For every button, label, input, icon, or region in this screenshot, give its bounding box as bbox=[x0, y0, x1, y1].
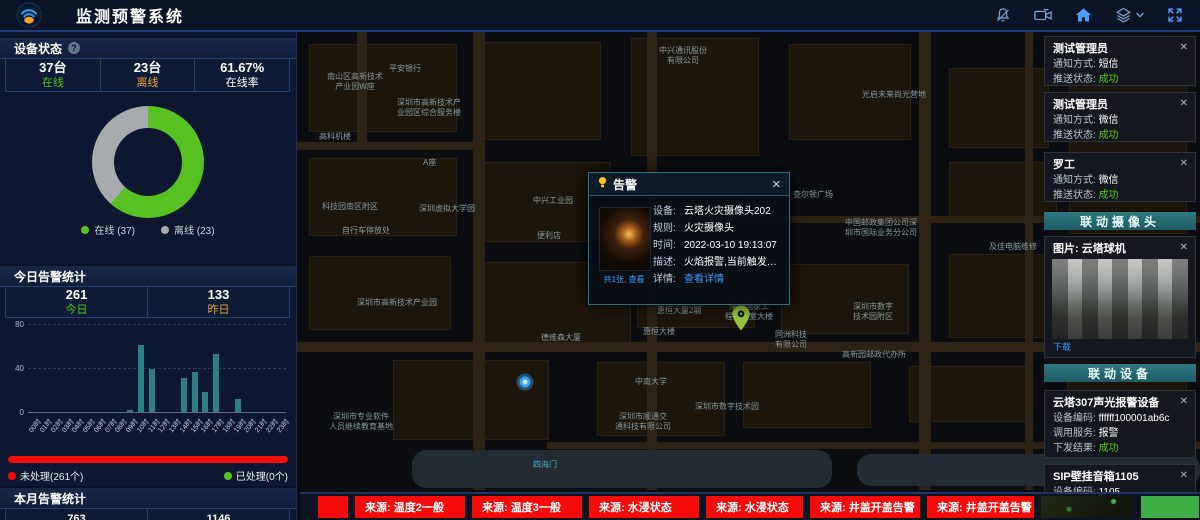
card-row: 推送状态: 成功 bbox=[1053, 130, 1187, 142]
x-axis-tick: 10时 bbox=[130, 417, 152, 440]
bar bbox=[192, 372, 198, 412]
card-close-icon[interactable]: ✕ bbox=[1180, 470, 1188, 481]
row-value: 短信 bbox=[1099, 59, 1119, 70]
map-building bbox=[309, 256, 451, 330]
chart-gridline bbox=[28, 368, 286, 369]
stat-label: 今日 bbox=[66, 305, 88, 316]
stat-value: 261 bbox=[66, 288, 88, 302]
x-axis-tick: 22时 bbox=[259, 417, 281, 440]
monitoring-dashboard: 监测预警系统 设备状态 ? 37台在线23台离线61.67%在线率 在线 (37… bbox=[0, 0, 1200, 520]
row-label: 通知方式: bbox=[1053, 115, 1099, 126]
today-alarm-stats: 261今日133昨日 bbox=[6, 286, 290, 318]
right-panel: 测试管理员✕通知方式: 短信推送状态: 成功测试管理员✕通知方式: 微信推送状态… bbox=[1044, 34, 1196, 520]
map-label: 深圳市专业软件 人员继续教育基地 bbox=[329, 412, 393, 432]
ticker-alert-card[interactable]: 来源: 温度2一般 bbox=[355, 496, 465, 518]
bar bbox=[213, 354, 219, 412]
left-stats-panel: 设备状态 ? 37台在线23台离线61.67%在线率 在线 (37)离线 (23… bbox=[0, 30, 297, 520]
map-label: 高科机楼 bbox=[319, 132, 351, 142]
x-axis-tick: 17时 bbox=[205, 417, 227, 440]
stat-cell: 23台离线 bbox=[100, 58, 196, 92]
header-actions bbox=[994, 0, 1184, 30]
row-label: 通知方式: bbox=[1053, 175, 1099, 186]
top-header: 监测预警系统 bbox=[0, 0, 1200, 32]
card-row: 通知方式: 微信 bbox=[1053, 175, 1187, 187]
map-label: 便利店 bbox=[537, 231, 561, 241]
map-label: 高新园邮政代办所 bbox=[842, 350, 906, 360]
map-building bbox=[949, 68, 1049, 148]
map-label: A座 bbox=[423, 158, 436, 168]
map-building bbox=[949, 162, 1057, 220]
bar bbox=[235, 399, 241, 412]
month-alarm-title: 本月告警统计 bbox=[14, 490, 86, 507]
x-axis-tick: 13时 bbox=[162, 417, 184, 440]
map-label: 深圳市数字 技术园附区 bbox=[853, 302, 893, 322]
ticker-alert-card[interactable]: 来源: 水浸状态 bbox=[706, 496, 803, 518]
today-alarm-title: 今日告警统计 bbox=[14, 268, 86, 285]
map-label: 同洲科技 有限公司 bbox=[775, 330, 807, 350]
map-label: 深圳市高新技术产业园 bbox=[357, 298, 437, 308]
detail-label: 详情: bbox=[653, 271, 680, 288]
row-label: 设备编码: bbox=[1053, 413, 1099, 424]
popup-close-icon[interactable]: ✕ bbox=[772, 178, 781, 191]
device-name: 云塔307声光报警设备 bbox=[1053, 397, 1187, 410]
stat-label: 在线率 bbox=[226, 78, 259, 89]
map-building bbox=[483, 42, 601, 140]
stat-cell: 61.67%在线率 bbox=[194, 58, 290, 92]
legend-item: 在线 (37) bbox=[81, 222, 135, 237]
notification-card: 罗工✕通知方式: 微信推送状态: 成功 bbox=[1044, 152, 1196, 202]
alarm-snapshot-image[interactable] bbox=[599, 207, 651, 271]
map-label: 查尔顿广场 bbox=[793, 190, 833, 200]
alarm-detail-row: 设备:云塔火灾摄像头202 bbox=[653, 203, 785, 220]
stat-cell: 261今日 bbox=[5, 286, 148, 318]
x-axis-tick: 06时 bbox=[87, 417, 109, 440]
bar bbox=[181, 378, 187, 412]
map-building bbox=[781, 264, 909, 334]
map-label: 深圳虚拟大学园 bbox=[419, 204, 475, 214]
map-wide-road bbox=[412, 450, 832, 488]
device-status-stats: 37台在线23台离线61.67%在线率 bbox=[6, 58, 290, 92]
card-row: 推送状态: 成功 bbox=[1053, 190, 1187, 202]
card-row: 通知方式: 短信 bbox=[1053, 59, 1187, 71]
device-status-donut-chart bbox=[92, 106, 204, 218]
map-label: 中南大学 bbox=[635, 377, 667, 387]
map-road bbox=[473, 30, 485, 490]
unhandled-label: 未处理(261个) bbox=[20, 468, 83, 483]
handled-label: 已处理(0个) bbox=[236, 468, 288, 483]
detail-label: 规则: bbox=[653, 220, 680, 237]
x-axis-tick: 14时 bbox=[173, 417, 195, 440]
stat-cell: 763 bbox=[5, 508, 148, 520]
map-label: 自行车停放处 bbox=[342, 226, 390, 236]
detail-label: 设备: bbox=[653, 203, 680, 220]
x-axis-tick: 15时 bbox=[183, 417, 205, 440]
notification-card: 测试管理员✕通知方式: 短信推送状态: 成功 bbox=[1044, 36, 1196, 86]
x-axis-tick: 21时 bbox=[248, 417, 270, 440]
map-label: 平安银行 bbox=[389, 64, 421, 74]
stat-label: 在线 bbox=[42, 78, 64, 89]
row-label: 调用服务: bbox=[1053, 428, 1099, 439]
card-row: 设备编码: ffffff100001ab6c bbox=[1053, 413, 1187, 425]
alarm-progress-fill bbox=[8, 456, 288, 463]
notification-name: 测试管理员 bbox=[1053, 43, 1187, 56]
y-axis-tick: 80 bbox=[4, 320, 24, 329]
ticker-alert-card[interactable]: 来源: 温度3一般 bbox=[472, 496, 582, 518]
map-label: 中国邮政集团公司深 圳市国际业务分公司 bbox=[845, 218, 917, 238]
map-device-marker[interactable] bbox=[516, 373, 534, 391]
map-label: 科技园南区附区 bbox=[322, 202, 378, 212]
app-logo-icon bbox=[16, 2, 42, 28]
alarm-detail-row: 时间:2022-03-10 19:13:07 bbox=[653, 237, 785, 254]
map-location-pin[interactable] bbox=[730, 304, 752, 337]
handled-legend-item: 已处理(0个) bbox=[224, 468, 288, 483]
stat-cell: 37台在线 bbox=[5, 58, 101, 92]
today-alarm-header: 今日告警统计 bbox=[0, 264, 296, 287]
map-label: 深圳市顺通交 通科技有限公司 bbox=[615, 412, 671, 432]
map-building bbox=[309, 158, 457, 236]
fullscreen-icon[interactable] bbox=[1166, 6, 1184, 24]
alarm-bulb-icon bbox=[597, 176, 608, 192]
month-alarm-header: 本月告警统计 bbox=[0, 486, 296, 509]
card-close-icon[interactable]: ✕ bbox=[1180, 158, 1188, 169]
linked-camera-button[interactable]: 联动摄像头 bbox=[1044, 212, 1196, 230]
x-axis-tick: 08时 bbox=[108, 417, 130, 440]
device-card: 云塔307声光报警设备✕设备编码: ffffff100001ab6c调用服务: … bbox=[1044, 390, 1196, 458]
map-label: 深圳市高新技术产 业园区综合服务楼 bbox=[397, 98, 461, 118]
row-value: 微信 bbox=[1099, 175, 1119, 186]
map-label: 中兴工业园 bbox=[533, 196, 573, 206]
map-label: 深圳市数字技术园 bbox=[695, 402, 759, 412]
x-axis-tick: 12时 bbox=[151, 417, 173, 440]
y-axis-tick: 0 bbox=[4, 408, 24, 417]
chart-gridline bbox=[28, 324, 286, 325]
row-label: 下发结果: bbox=[1053, 443, 1099, 454]
chart-gridline bbox=[28, 412, 286, 413]
alarm-progress-bar bbox=[8, 456, 288, 463]
map-road bbox=[297, 142, 483, 150]
video-camera-icon[interactable] bbox=[1033, 6, 1053, 24]
stat-value: 133 bbox=[208, 288, 230, 302]
donut-hole bbox=[114, 128, 182, 196]
detail-label: 时间: bbox=[653, 237, 680, 254]
stat-label: 昨日 bbox=[208, 305, 230, 316]
bar bbox=[127, 410, 133, 412]
stat-cell: 1146 bbox=[147, 508, 290, 520]
alarm-progress-legend: 未处理(261个) 已处理(0个) bbox=[8, 468, 288, 483]
row-label: 通知方式: bbox=[1053, 59, 1099, 70]
card-row: 下发结果: 成功 bbox=[1053, 443, 1187, 455]
bar bbox=[149, 369, 155, 412]
alarm-popup: 告警 ✕ 共1张, 查看 设备:云塔火灾摄像头202规则:火灾摄像头时间:202… bbox=[588, 172, 790, 305]
x-axis-tick: 16时 bbox=[194, 417, 216, 440]
card-close-icon[interactable]: ✕ bbox=[1180, 396, 1188, 407]
alarm-popup-title: 告警 bbox=[613, 176, 637, 193]
chevron-down-icon[interactable] bbox=[1135, 6, 1145, 24]
device-status-header: 设备状态 ? bbox=[0, 36, 296, 59]
device-status-title: 设备状态 bbox=[14, 40, 62, 57]
stat-value: 37台 bbox=[39, 61, 66, 75]
x-axis-tick: 03时 bbox=[54, 417, 76, 440]
x-axis-tick: 00时 bbox=[22, 417, 44, 440]
stat-value: 61.67% bbox=[220, 61, 264, 75]
alarm-popup-titlebar: 告警 ✕ bbox=[589, 173, 789, 196]
notification-card: 测试管理员✕通知方式: 微信推送状态: 成功 bbox=[1044, 92, 1196, 142]
map-label: 德维森大厦 bbox=[541, 333, 581, 343]
camera-image-card: 图片: 云塔球机✕下载 bbox=[1044, 236, 1196, 358]
legend-dot-icon bbox=[81, 226, 89, 234]
help-icon[interactable]: ? bbox=[68, 42, 80, 54]
handled-dot-icon bbox=[224, 472, 232, 480]
alarm-detail-row: 详情:查看详情 bbox=[653, 271, 785, 288]
alarm-snapshot-caption[interactable]: 共1张, 查看 bbox=[595, 274, 653, 285]
stat-value: 1146 bbox=[207, 509, 231, 520]
row-label: 推送状态: bbox=[1053, 74, 1099, 85]
alarm-popup-details: 设备:云塔火灾摄像头202规则:火灾摄像头时间:2022-03-10 19:13… bbox=[653, 203, 785, 288]
row-value: 成功 bbox=[1099, 74, 1119, 85]
app-title: 监测预警系统 bbox=[76, 3, 184, 27]
y-axis-tick: 40 bbox=[4, 364, 24, 373]
card-close-icon[interactable]: ✕ bbox=[1180, 98, 1188, 109]
legend-item: 离线 (23) bbox=[161, 222, 215, 237]
x-axis-tick: 11时 bbox=[140, 417, 162, 440]
camera-image-title: 图片: 云塔球机 bbox=[1053, 243, 1187, 256]
card-close-icon[interactable]: ✕ bbox=[1180, 242, 1188, 253]
legend-label: 离线 (23) bbox=[174, 222, 215, 237]
ticker-alert-card[interactable]: 来源: 井盖开盖告警 bbox=[810, 496, 920, 518]
notification-name: 测试管理员 bbox=[1053, 99, 1187, 112]
download-link[interactable]: 下载 bbox=[1053, 340, 1071, 353]
x-axis-tick: 19时 bbox=[226, 417, 248, 440]
x-axis-tick: 20时 bbox=[237, 417, 259, 440]
row-value: ffffff100001ab6c bbox=[1099, 413, 1170, 424]
notification-name: 罗工 bbox=[1053, 159, 1187, 172]
bar bbox=[138, 345, 144, 412]
map-label: 惠恒大楼 bbox=[643, 327, 675, 337]
row-label: 推送状态: bbox=[1053, 190, 1099, 201]
x-axis-tick: 05时 bbox=[76, 417, 98, 440]
home-icon[interactable] bbox=[1074, 6, 1093, 24]
map-label: 南山区高新技术 产业园W座 bbox=[327, 72, 383, 92]
card-close-icon[interactable]: ✕ bbox=[1180, 42, 1188, 53]
card-row: 调用服务: 报警 bbox=[1053, 428, 1187, 440]
x-axis-tick: 04时 bbox=[65, 417, 87, 440]
detail-value: 火灾摄像头 bbox=[684, 220, 734, 237]
row-value: 微信 bbox=[1099, 115, 1119, 126]
bar bbox=[202, 392, 208, 412]
donut-legend: 在线 (37)离线 (23) bbox=[0, 222, 296, 237]
x-axis-tick: 07时 bbox=[97, 417, 119, 440]
linked-device-button[interactable]: 联动设备 bbox=[1044, 364, 1196, 382]
row-value: 成功 bbox=[1099, 190, 1119, 201]
map-label: 中兴通讯股份 有限公司 bbox=[659, 46, 707, 66]
row-label: 推送状态: bbox=[1053, 130, 1099, 141]
legend-label: 在线 (37) bbox=[94, 222, 135, 237]
map-label: 及佳电脑维修 bbox=[989, 242, 1037, 252]
unhandled-legend-item: 未处理(261个) bbox=[8, 468, 83, 483]
x-axis-tick: 18时 bbox=[216, 417, 238, 440]
ticker-alert-card[interactable]: 来源: 井盖开盖告警 bbox=[927, 496, 1034, 518]
alarm-detail-row: 描述:火焰报警,当前触发值为... bbox=[653, 254, 785, 271]
legend-dot-icon bbox=[161, 226, 169, 234]
x-axis-tick: 01时 bbox=[33, 417, 55, 440]
stat-label: 离线 bbox=[137, 78, 159, 89]
map-road bbox=[1025, 30, 1033, 490]
card-row: 通知方式: 微信 bbox=[1053, 115, 1187, 127]
layers-icon[interactable] bbox=[1114, 6, 1145, 24]
stat-value: 23台 bbox=[134, 61, 161, 75]
camera-snapshot-image[interactable] bbox=[1052, 259, 1188, 339]
month-alarm-stats: 7631146 bbox=[6, 508, 290, 520]
ticker-image-thumb[interactable] bbox=[1041, 496, 1134, 518]
ticker-alert-card[interactable] bbox=[318, 496, 348, 518]
alarm-detail-row: 规则:火灾摄像头 bbox=[653, 220, 785, 237]
map-building bbox=[743, 362, 871, 428]
device-name: SIP壁挂音箱1105 bbox=[1053, 471, 1187, 484]
stat-cell: 133昨日 bbox=[147, 286, 290, 318]
stat-value: 763 bbox=[67, 509, 85, 520]
map-label: 惠恒大厦2期 bbox=[657, 306, 701, 316]
view-details-link[interactable]: 查看详情 bbox=[684, 271, 724, 288]
detail-label: 描述: bbox=[653, 254, 680, 271]
row-value: 成功 bbox=[1099, 130, 1119, 141]
row-value: 成功 bbox=[1099, 443, 1119, 454]
bell-mute-icon[interactable] bbox=[994, 6, 1012, 24]
x-axis-tick: 09时 bbox=[119, 417, 141, 440]
card-row: 推送状态: 成功 bbox=[1053, 74, 1187, 86]
detail-value: 云塔火灾摄像头202 bbox=[684, 203, 771, 220]
map-label: 光启未来尚光营地 bbox=[862, 90, 926, 100]
x-axis-tick: 02时 bbox=[44, 417, 66, 440]
ticker-green-thumb[interactable] bbox=[1141, 496, 1199, 518]
detail-value: 火焰报警,当前触发值为... bbox=[684, 254, 785, 271]
x-axis-tick: 23时 bbox=[269, 417, 291, 440]
map-label: 四海门 bbox=[533, 460, 557, 470]
detail-value: 2022-03-10 19:13:07 bbox=[684, 237, 777, 254]
row-value: 报警 bbox=[1099, 428, 1119, 439]
alert-ticker: 来源: 温度2一般来源: 温度3一般来源: 水浸状态来源: 水浸状态来源: 井盖… bbox=[300, 492, 1200, 520]
unhandled-dot-icon bbox=[8, 472, 16, 480]
map-building bbox=[393, 360, 549, 440]
ticker-alert-card[interactable]: 来源: 水浸状态 bbox=[589, 496, 699, 518]
